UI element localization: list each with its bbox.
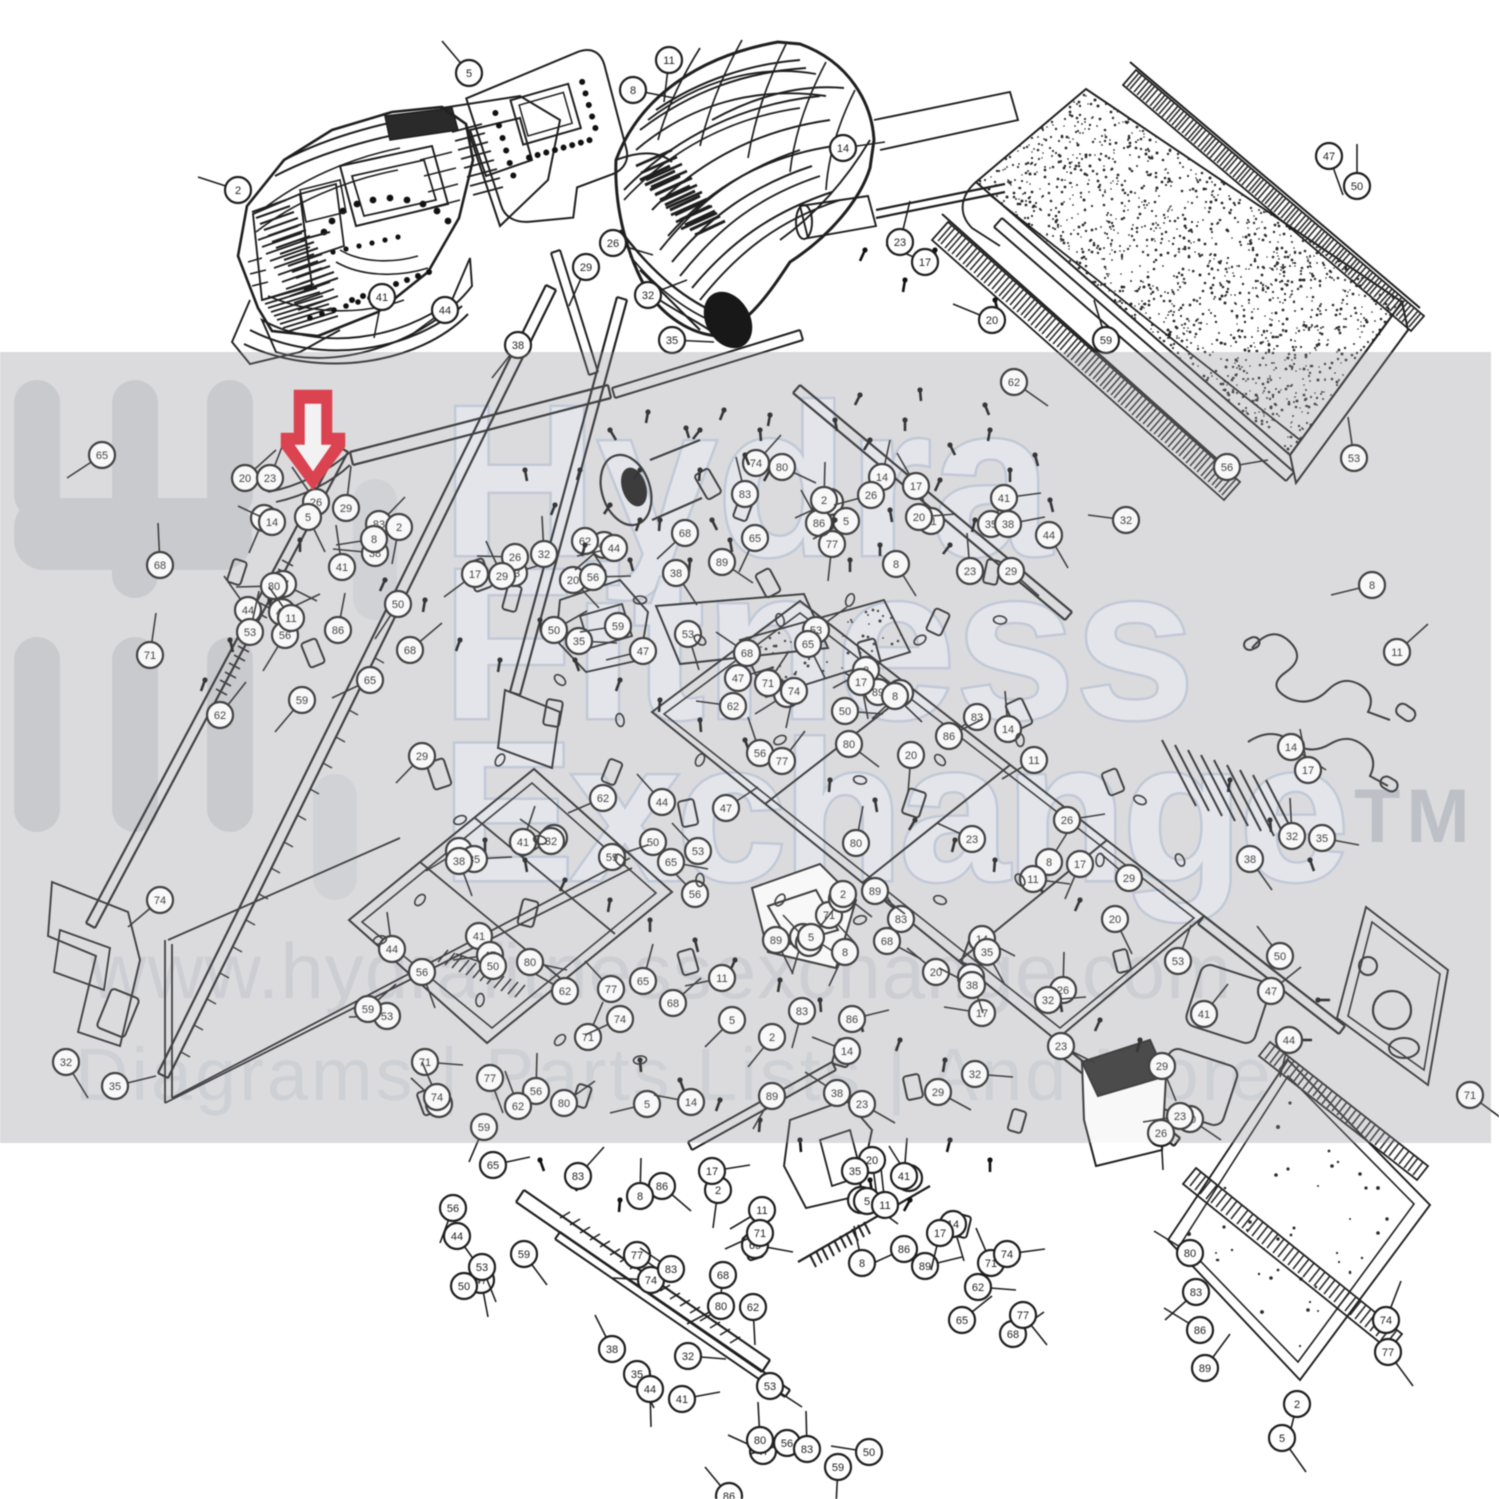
- svg-text:8: 8: [859, 1258, 865, 1270]
- svg-text:44: 44: [439, 305, 451, 317]
- svg-text:59: 59: [832, 1462, 844, 1474]
- svg-text:44: 44: [644, 1384, 656, 1396]
- svg-text:38: 38: [512, 340, 524, 352]
- svg-text:2: 2: [1294, 1399, 1300, 1411]
- svg-text:5: 5: [1279, 1433, 1285, 1445]
- svg-text:41: 41: [898, 1171, 910, 1183]
- svg-text:41: 41: [376, 292, 388, 304]
- svg-text:26: 26: [607, 238, 619, 250]
- svg-text:83: 83: [572, 1171, 584, 1183]
- svg-text:77: 77: [1017, 1310, 1029, 1322]
- svg-text:11: 11: [756, 1205, 767, 1217]
- svg-text:83: 83: [665, 1264, 677, 1276]
- svg-text:8: 8: [630, 85, 636, 97]
- svg-text:50: 50: [863, 1447, 875, 1459]
- svg-text:80: 80: [754, 1435, 766, 1447]
- svg-text:32: 32: [642, 290, 654, 302]
- svg-text:68: 68: [717, 1270, 729, 1282]
- svg-text:35: 35: [666, 335, 678, 347]
- svg-text:17: 17: [919, 257, 931, 269]
- svg-text:41: 41: [676, 1394, 688, 1406]
- svg-text:38: 38: [606, 1344, 618, 1356]
- svg-text:74: 74: [1380, 1315, 1392, 1327]
- svg-text:86: 86: [898, 1244, 910, 1256]
- svg-text:53: 53: [764, 1381, 776, 1393]
- svg-text:68: 68: [1007, 1329, 1019, 1341]
- svg-text:47: 47: [1323, 151, 1335, 163]
- svg-text:74: 74: [1001, 1249, 1013, 1261]
- svg-text:83: 83: [1190, 1287, 1202, 1299]
- svg-text:83: 83: [801, 1444, 813, 1456]
- svg-text:23: 23: [894, 237, 906, 249]
- svg-text:29: 29: [580, 262, 592, 274]
- svg-text:53: 53: [476, 1262, 488, 1274]
- svg-text:80: 80: [715, 1301, 727, 1313]
- svg-text:89: 89: [1199, 1363, 1211, 1375]
- svg-text:89: 89: [919, 1261, 931, 1273]
- svg-text:5: 5: [466, 68, 472, 80]
- svg-text:32: 32: [682, 1351, 694, 1363]
- svg-text:71: 71: [754, 1228, 766, 1240]
- svg-text:56: 56: [447, 1203, 459, 1215]
- svg-text:8: 8: [637, 1191, 643, 1203]
- svg-text:2: 2: [235, 185, 241, 197]
- svg-text:56: 56: [781, 1438, 793, 1450]
- svg-text:62: 62: [747, 1302, 759, 1314]
- svg-text:20: 20: [986, 315, 998, 327]
- svg-text:35: 35: [849, 1166, 861, 1178]
- svg-text:62: 62: [972, 1282, 984, 1294]
- svg-text:86: 86: [656, 1181, 668, 1193]
- svg-text:2: 2: [715, 1185, 721, 1197]
- svg-text:65: 65: [487, 1160, 499, 1172]
- svg-text:14: 14: [837, 143, 849, 155]
- svg-text:5: 5: [864, 1196, 870, 1208]
- svg-text:65: 65: [956, 1315, 968, 1327]
- svg-text:11: 11: [663, 55, 674, 67]
- svg-text:59: 59: [1100, 335, 1112, 347]
- svg-text:86: 86: [723, 1491, 735, 1499]
- svg-text:50: 50: [1351, 181, 1363, 193]
- svg-text:86: 86: [1194, 1325, 1206, 1337]
- svg-text:50: 50: [458, 1281, 470, 1293]
- svg-text:77: 77: [631, 1250, 643, 1262]
- svg-text:80: 80: [1184, 1248, 1196, 1260]
- svg-text:17: 17: [934, 1228, 946, 1240]
- svg-text:11: 11: [879, 1200, 890, 1212]
- svg-text:77: 77: [1382, 1347, 1394, 1359]
- svg-text:44: 44: [451, 1231, 463, 1243]
- svg-text:17: 17: [706, 1166, 718, 1178]
- svg-text:59: 59: [518, 1249, 530, 1261]
- svg-text:74: 74: [645, 1275, 657, 1287]
